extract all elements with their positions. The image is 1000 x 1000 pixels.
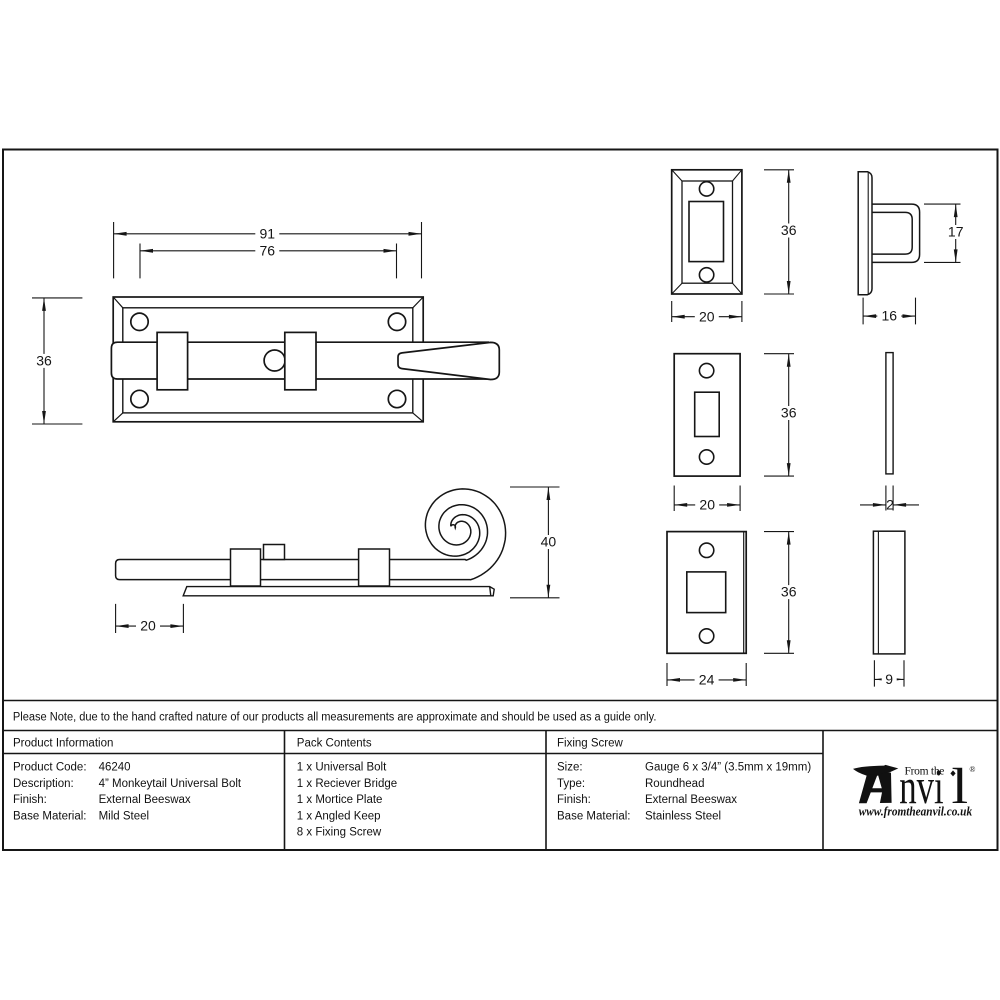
- svg-text:Base Material:: Base Material:: [13, 810, 87, 822]
- svg-text:36: 36: [781, 584, 797, 600]
- svg-text:www.fromtheanvil.co.uk: www.fromtheanvil.co.uk: [859, 804, 973, 819]
- svg-text:8 x Fixing Screw: 8 x Fixing Screw: [297, 827, 382, 839]
- svg-text:1 x Mortice Plate: 1 x Mortice Plate: [297, 794, 383, 806]
- svg-text:External Beeswax: External Beeswax: [99, 794, 191, 806]
- svg-text:®: ®: [969, 765, 975, 774]
- svg-text:Size:: Size:: [557, 762, 583, 774]
- svg-text:20: 20: [140, 618, 156, 634]
- svg-text:24: 24: [699, 672, 715, 688]
- svg-text:Type:: Type:: [557, 778, 585, 790]
- svg-text:Pack Contents: Pack Contents: [297, 738, 372, 750]
- svg-text:36: 36: [36, 353, 52, 369]
- svg-text:40: 40: [541, 534, 557, 550]
- svg-text:1 x Reciever Bridge: 1 x Reciever Bridge: [297, 778, 397, 790]
- svg-text:76: 76: [260, 242, 276, 258]
- svg-text:4” Monkeytail Universal Bolt: 4” Monkeytail Universal Bolt: [99, 778, 242, 790]
- svg-text:91: 91: [260, 225, 276, 241]
- svg-text:Finish:: Finish:: [557, 794, 591, 806]
- svg-text:Fixing Screw: Fixing Screw: [557, 738, 624, 750]
- svg-text:1 x Universal Bolt: 1 x Universal Bolt: [297, 762, 387, 774]
- svg-text:20: 20: [699, 497, 715, 513]
- svg-text:Base Material:: Base Material:: [557, 810, 631, 822]
- svg-text:36: 36: [781, 405, 797, 421]
- svg-text:Please Note, due to the hand c: Please Note, due to the hand crafted nat…: [13, 711, 657, 723]
- svg-text:Roundhead: Roundhead: [645, 778, 704, 790]
- svg-text:2: 2: [886, 497, 894, 513]
- svg-text:Gauge 6 x 3/4” (3.5mm x 19mm): Gauge 6 x 3/4” (3.5mm x 19mm): [645, 762, 811, 774]
- svg-text:Description:: Description:: [13, 778, 74, 790]
- svg-text:Product Information: Product Information: [13, 738, 113, 750]
- svg-text:9: 9: [885, 671, 893, 687]
- svg-text:1 x Angled Keep: 1 x Angled Keep: [297, 810, 381, 822]
- svg-text:Product Code:: Product Code:: [13, 762, 87, 774]
- svg-text:46240: 46240: [99, 762, 131, 774]
- svg-text:36: 36: [781, 222, 797, 238]
- svg-text:Finish:: Finish:: [13, 794, 47, 806]
- svg-text:16: 16: [882, 308, 898, 324]
- svg-text:External Beeswax: External Beeswax: [645, 794, 737, 806]
- svg-text:20: 20: [699, 308, 715, 324]
- svg-text:17: 17: [948, 224, 964, 240]
- svg-text:Mild Steel: Mild Steel: [99, 810, 150, 822]
- svg-text:Stainless Steel: Stainless Steel: [645, 810, 721, 822]
